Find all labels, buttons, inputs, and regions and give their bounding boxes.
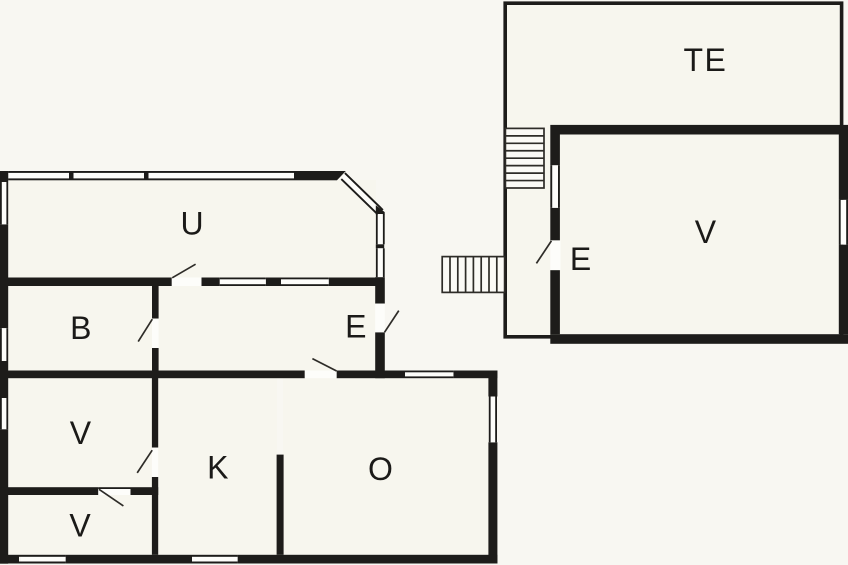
svg-text:V: V xyxy=(69,508,91,544)
svg-text:TE: TE xyxy=(683,42,727,78)
svg-text:V: V xyxy=(70,415,92,451)
svg-text:O: O xyxy=(368,451,393,487)
svg-text:B: B xyxy=(70,310,91,346)
svg-text:E: E xyxy=(345,309,366,345)
svg-text:K: K xyxy=(207,450,228,486)
svg-text:V: V xyxy=(695,214,717,250)
svg-text:U: U xyxy=(180,206,203,242)
svg-text:E: E xyxy=(570,241,591,277)
